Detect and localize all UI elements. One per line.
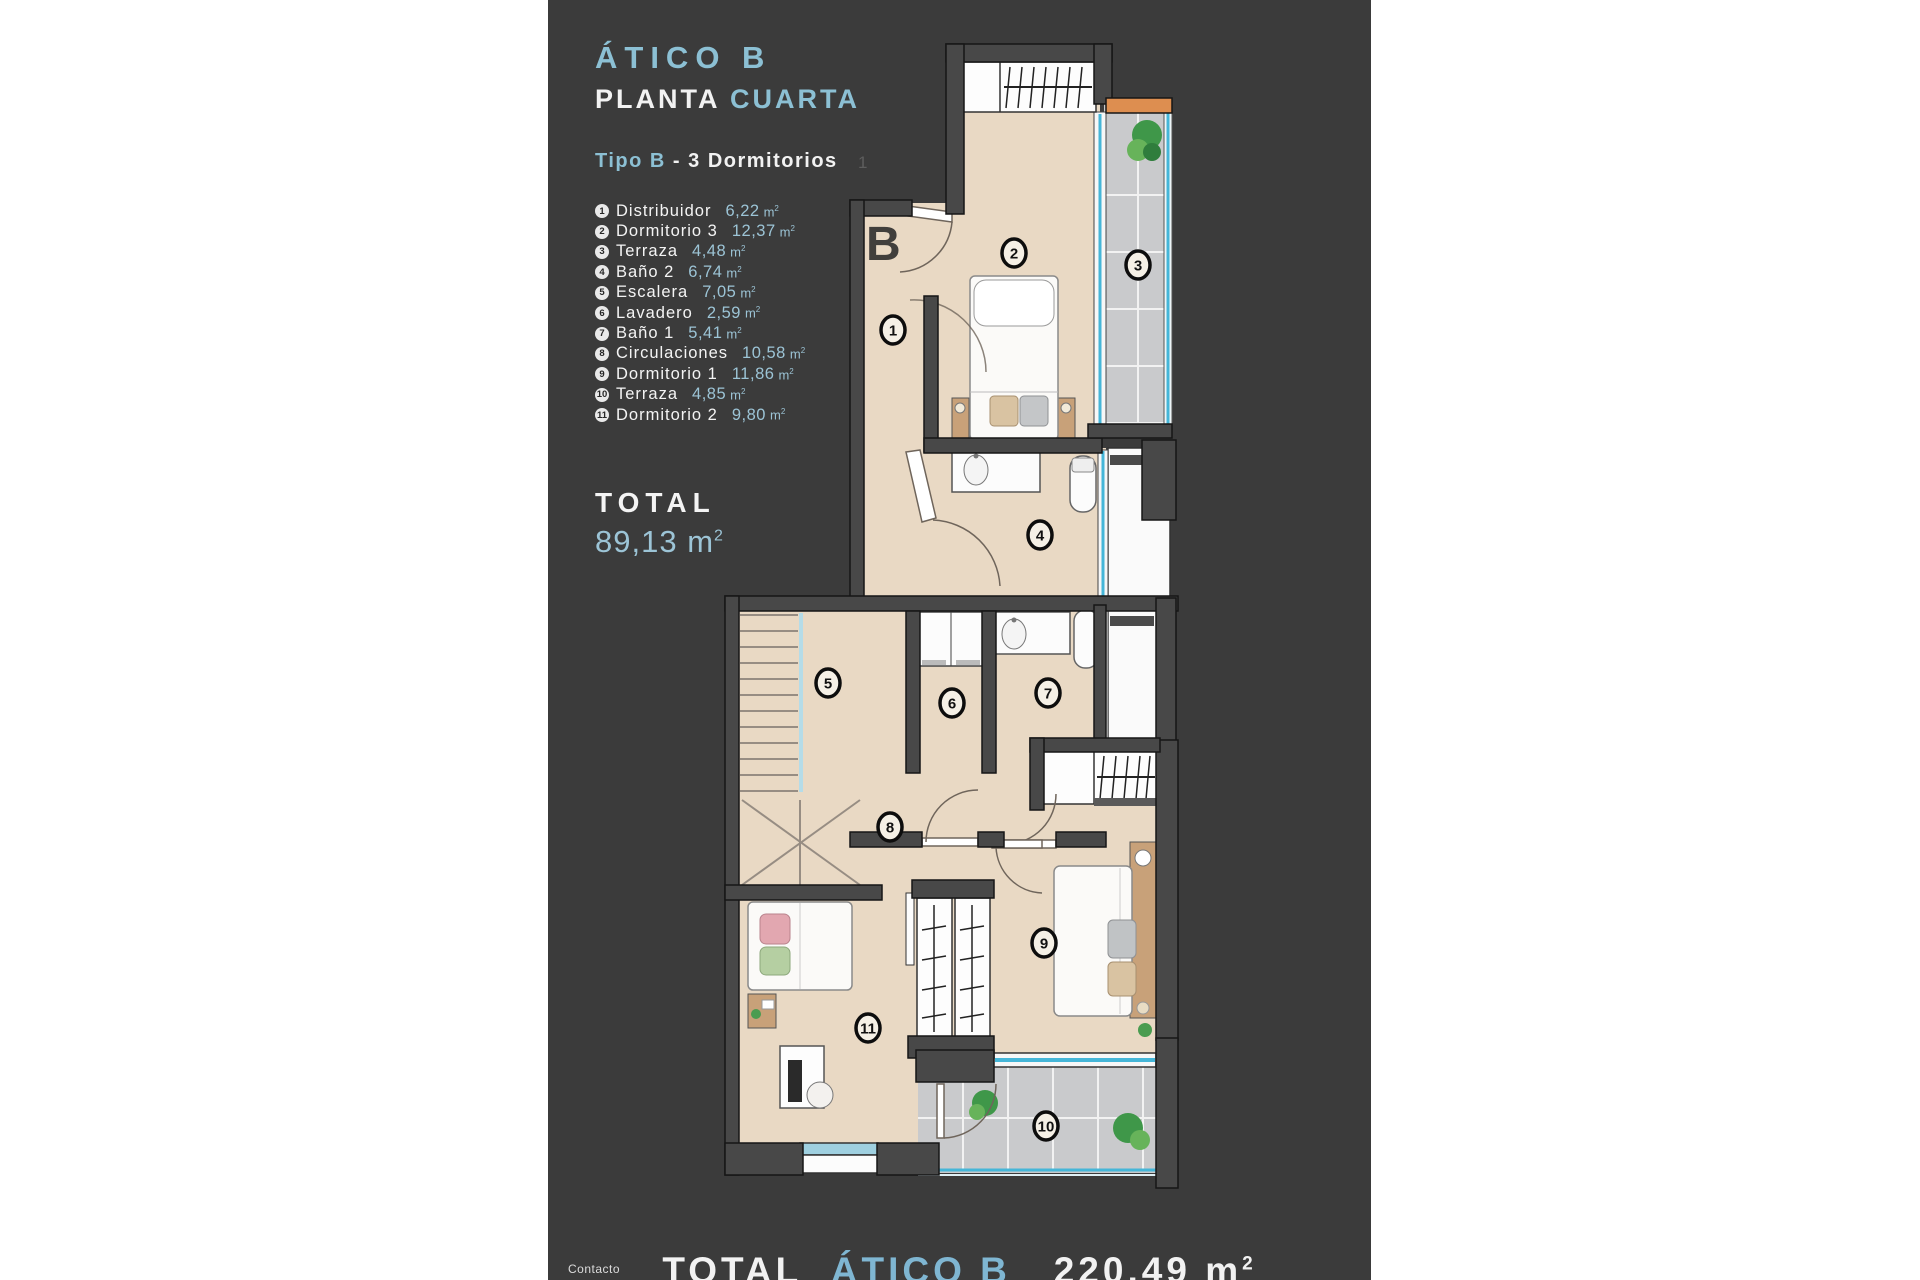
svg-text:11: 11 — [860, 1021, 876, 1038]
room-marker-7: 7 — [1036, 679, 1060, 707]
svg-text:4: 4 — [1036, 528, 1045, 545]
legend-unit: m2 — [780, 224, 795, 239]
legend-badge: 10 — [595, 388, 609, 402]
footer-total: TOTAL ÁTICO B 220,49 m2 — [548, 1250, 1371, 1280]
plan-faint-label: 1 — [858, 153, 867, 172]
legend-row: 2Dormitorio 312,37m2 — [595, 221, 805, 241]
legend-badge: 5 — [595, 286, 609, 300]
legend-room-name: Distribuidor — [616, 202, 711, 221]
legend-badge: 2 — [595, 225, 609, 239]
room-marker-1: 1 — [881, 316, 905, 344]
legend-unit: m2 — [730, 244, 745, 259]
plan-letter-b: B — [866, 218, 901, 271]
svg-text:8: 8 — [886, 820, 894, 837]
svg-text:2: 2 — [1010, 246, 1018, 263]
room-marker-11: 11 — [856, 1014, 880, 1042]
legend-badge: 3 — [595, 245, 609, 259]
legend-row: 8Circulaciones10,58m2 — [595, 344, 805, 364]
legend-badge: 7 — [595, 327, 609, 341]
total-label: TOTAL — [595, 487, 716, 519]
room-marker-5: 5 — [816, 669, 840, 697]
legend-room-area: 4,85 — [692, 385, 726, 404]
legend-room-area: 2,59 — [707, 304, 741, 323]
legend-room-name: Terraza — [616, 242, 678, 261]
legend-row: 1Distribuidor6,22m2 — [595, 201, 805, 221]
legend-badge: 4 — [595, 265, 609, 279]
legend-room-name: Terraza — [616, 385, 678, 404]
contact-link[interactable]: Contacto — [568, 1262, 620, 1276]
svg-text:6: 6 — [948, 696, 956, 713]
legend-row: 4Baño 26,74m2 — [595, 262, 805, 282]
room-marker-6: 6 — [940, 689, 964, 717]
svg-text:3: 3 — [1134, 258, 1142, 275]
svg-text:9: 9 — [1040, 936, 1048, 953]
type-line: Tipo B - 3 Dormitorios — [595, 150, 838, 173]
legend-badge: 1 — [595, 204, 609, 218]
subtitle-floor: CUARTA — [730, 84, 860, 114]
legend-room-area: 12,37 — [732, 222, 776, 241]
svg-text:5: 5 — [824, 676, 832, 693]
floorplan-svg: B 1 1234567891011 — [548, 0, 1371, 1280]
legend-room-area: 4,48 — [692, 242, 726, 261]
legend-row: 9Dormitorio 111,86m2 — [595, 364, 805, 384]
legend-room-area: 5,41 — [688, 324, 722, 343]
legend-unit: m2 — [740, 285, 755, 300]
type-rest: - 3 Dormitorios — [673, 150, 838, 172]
legend-row: 11Dormitorio 29,80m2 — [595, 405, 805, 425]
legend-row: 10Terraza4,85m2 — [595, 385, 805, 405]
legend-room-name: Dormitorio 2 — [616, 406, 718, 425]
legend-badge: 8 — [595, 347, 609, 361]
legend-unit: m2 — [770, 407, 785, 422]
room-marker-3: 3 — [1126, 251, 1150, 279]
room-marker-10: 10 — [1034, 1112, 1058, 1140]
legend-room-area: 7,05 — [702, 283, 736, 302]
room-legend: 1Distribuidor6,22m22Dormitorio 312,37m23… — [595, 201, 805, 425]
legend-badge: 11 — [595, 408, 609, 422]
svg-text:10: 10 — [1038, 1119, 1055, 1136]
subtitle-plant: PLANTA — [595, 84, 719, 114]
legend-room-name: Dormitorio 3 — [616, 222, 718, 241]
svg-text:1: 1 — [889, 323, 897, 340]
legend-row: 7Baño 15,41m2 — [595, 323, 805, 343]
legend-unit: m2 — [745, 305, 760, 320]
legend-row: 5Escalera7,05m2 — [595, 283, 805, 303]
total-value: 89,13 m2 — [595, 524, 724, 560]
legend-room-name: Lavadero — [616, 304, 693, 323]
legend-unit: m2 — [726, 326, 741, 341]
room-marker-4: 4 — [1028, 521, 1052, 549]
legend-unit: m2 — [730, 387, 745, 402]
legend-room-area: 10,58 — [742, 344, 786, 363]
svg-text:7: 7 — [1044, 686, 1052, 703]
legend-badge: 9 — [595, 367, 609, 381]
legend-room-name: Escalera — [616, 283, 688, 302]
page-subtitle: PLANTA CUARTA — [595, 84, 860, 115]
legend-room-area: 11,86 — [732, 365, 775, 384]
page-title: ÁTICO B — [595, 40, 771, 76]
floorplan-panel: B 1 1234567891011 ÁTICO B PLANTA CUARTA … — [548, 0, 1371, 1280]
legend-room-area: 6,22 — [725, 202, 759, 221]
legend-room-area: 6,74 — [688, 263, 722, 282]
legend-unit: m2 — [790, 346, 805, 361]
legend-badge: 6 — [595, 306, 609, 320]
legend-room-area: 9,80 — [732, 406, 766, 425]
legend-room-name: Baño 2 — [616, 263, 674, 282]
legend-room-name: Dormitorio 1 — [616, 365, 718, 384]
room-marker-9: 9 — [1032, 929, 1056, 957]
legend-unit: m2 — [726, 265, 741, 280]
legend-unit: m2 — [764, 204, 779, 219]
page: B 1 1234567891011 ÁTICO B PLANTA CUARTA … — [0, 0, 1920, 1280]
room-marker-2: 2 — [1002, 239, 1026, 267]
legend-row: 6Lavadero2,59m2 — [595, 303, 805, 323]
legend-row: 3Terraza4,48m2 — [595, 242, 805, 262]
room-marker-8: 8 — [878, 813, 902, 841]
legend-unit: m2 — [778, 367, 793, 382]
type-accent: Tipo B — [595, 150, 666, 172]
legend-room-name: Circulaciones — [616, 344, 728, 363]
legend-room-name: Baño 1 — [616, 324, 674, 343]
